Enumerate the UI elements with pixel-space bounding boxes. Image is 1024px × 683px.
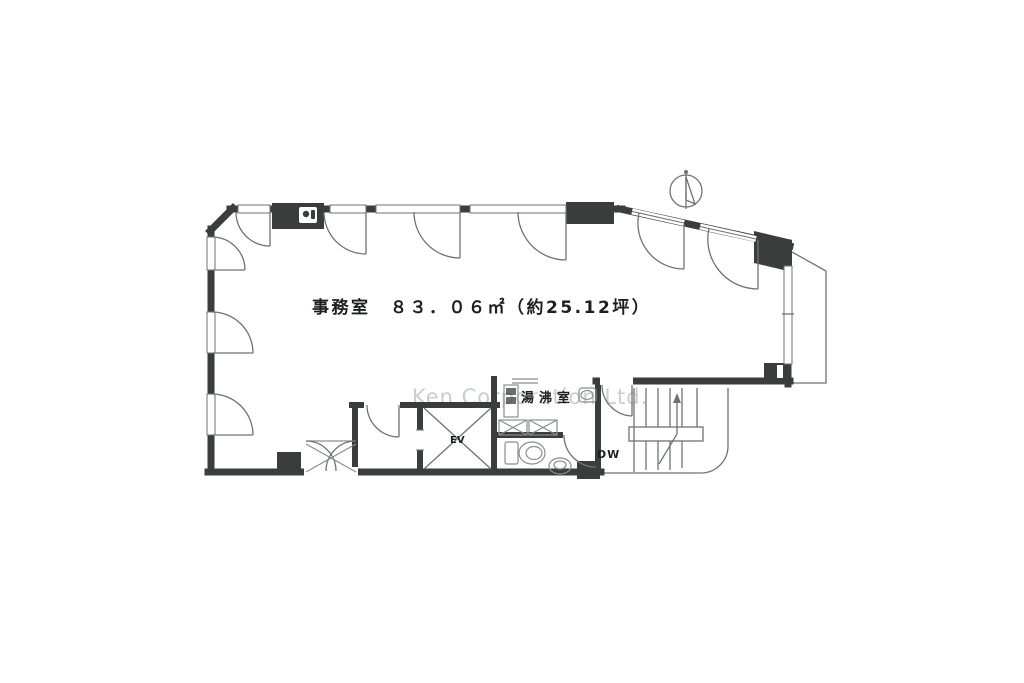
north-arrow-icon (670, 170, 702, 209)
room-area-label: 事務室 ８３．０６㎡（約25.12坪） (312, 297, 651, 318)
elevator-door (416, 430, 424, 450)
floor-plan-drawing: Ken Corporation Ltd. (0, 0, 1024, 683)
toilet-bowl-icon (519, 442, 545, 464)
floor-plan-page: Ken Corporation Ltd. (0, 0, 1024, 683)
kitchenette-label: 湯沸室 (521, 390, 575, 406)
elevator-label: EV (450, 435, 465, 446)
storage-room-door (367, 405, 399, 437)
elevator: EV (424, 408, 491, 469)
toilet-tank-icon (505, 442, 518, 464)
balcony (790, 252, 826, 383)
stair-landing (629, 427, 703, 441)
dumbwaiter-label: DW (597, 448, 620, 461)
